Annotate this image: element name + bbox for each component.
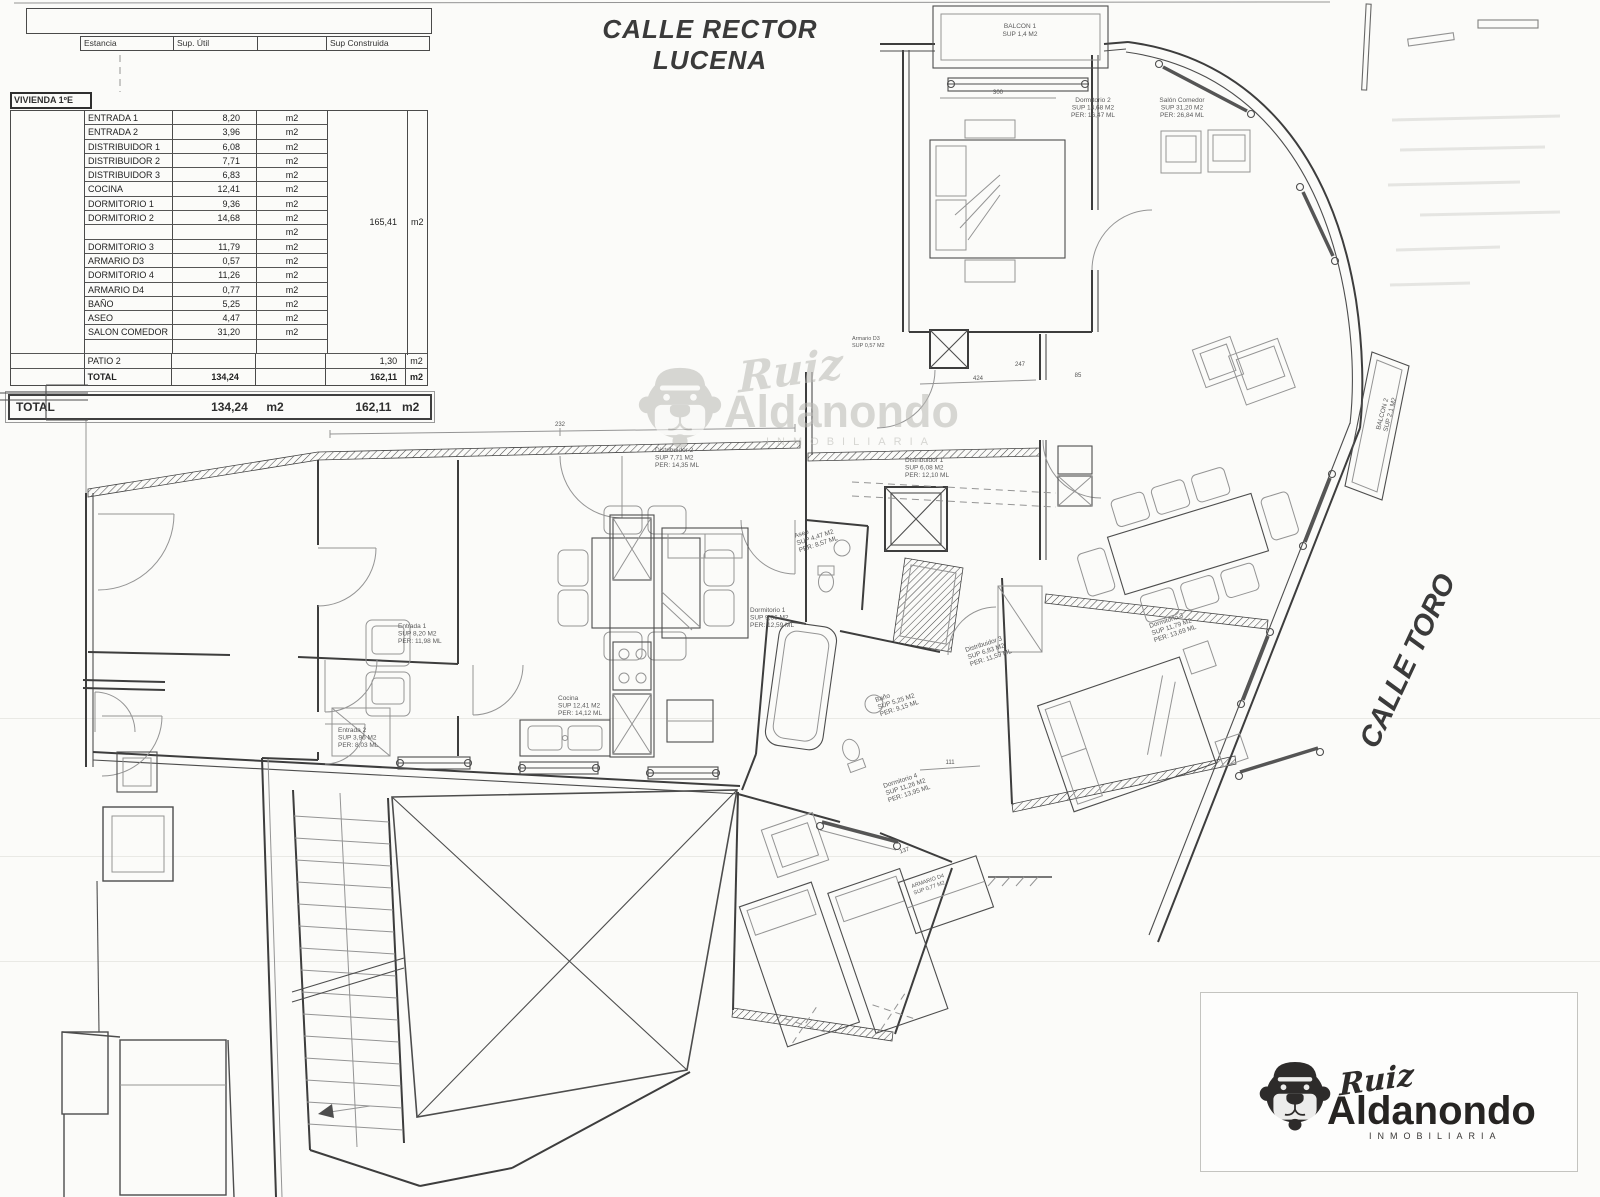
svg-text:Armario D3SUP 0,57 M2: Armario D3SUP 0,57 M2 bbox=[852, 336, 885, 349]
svg-text:Distribuidor 1SUP 6,08 M2PER:: Distribuidor 1SUP 6,08 M2PER: 12,10 ML bbox=[905, 457, 949, 479]
bedroom-center-bed bbox=[662, 528, 748, 742]
svg-text:Distribuidor 2SUP 7,71 M2PER:: Distribuidor 2SUP 7,71 M2PER: 14,35 ML bbox=[655, 447, 699, 469]
svg-text:Entrada 1SUP 8,20 M2PER: 11,98: Entrada 1SUP 8,20 M2PER: 11,98 ML bbox=[398, 623, 442, 645]
svg-text:Dormitorio 4SUP 11,26 M2PER: 1: Dormitorio 4SUP 11,26 M2PER: 13,95 ML bbox=[882, 770, 931, 805]
svg-text:Salón ComedorSUP 31,20 M2PER:: Salón ComedorSUP 31,20 M2PER: 26,84 ML bbox=[1159, 97, 1205, 119]
svg-text:424: 424 bbox=[973, 376, 984, 382]
svg-text:BañoSUP 5,25 M2PER: 9,15 ML: BañoSUP 5,25 M2PER: 9,15 ML bbox=[874, 685, 920, 719]
scan-top-edge bbox=[14, 2, 1330, 3]
svg-text:Dormitorio 1SUP 9,36 M2PER: 12: Dormitorio 1SUP 9,36 M2PER: 12,59 ML bbox=[750, 607, 794, 629]
svg-text:Entrada 2SUP 3,96 M2PER: 8,03: Entrada 2SUP 3,96 M2PER: 8,03 ML bbox=[338, 727, 379, 749]
svg-text:111: 111 bbox=[945, 760, 955, 766]
patio-courtyard bbox=[392, 790, 737, 1117]
staircase bbox=[262, 758, 690, 1197]
bathroom bbox=[742, 607, 996, 790]
living-room-furniture bbox=[877, 130, 1295, 498]
logo-brand-subtitle: INMOBILIARIA bbox=[1369, 1131, 1502, 1141]
dimension-lines bbox=[330, 98, 1056, 770]
svg-text:BALCON 2SUP 2,1 M2: BALCON 2SUP 2,1 M2 bbox=[1375, 395, 1398, 433]
dining-table-left bbox=[558, 506, 734, 660]
ground-mark bbox=[988, 877, 1052, 886]
agency-logo-box: Ruiz Aldanondo INMOBILIARIA bbox=[1200, 992, 1578, 1172]
elevator-shaft-stack bbox=[1058, 446, 1092, 506]
left-unit-doors bbox=[95, 456, 795, 776]
svg-text:CocinaSUP 12,41 M2PER: 14,12 M: CocinaSUP 12,41 M2PER: 14,12 ML bbox=[558, 695, 602, 717]
elevator-main bbox=[885, 487, 947, 551]
patio-2-shaft bbox=[893, 558, 963, 652]
bulldog-logo-icon bbox=[1259, 1051, 1331, 1135]
scanned-floorplan-page: Estancia Sup. Útil Sup Construida VIVIEN… bbox=[0, 0, 1600, 1197]
elevator-shaft-small bbox=[930, 330, 968, 368]
svg-text:85: 85 bbox=[1075, 373, 1082, 379]
balcony-1 bbox=[933, 6, 1108, 91]
svg-text:Dormitorio 2SUP 14,68 M2PER: 1: Dormitorio 2SUP 14,68 M2PER: 16,47 ML bbox=[1071, 97, 1115, 119]
window-right-bottom bbox=[1236, 748, 1324, 780]
svg-text:232: 232 bbox=[555, 422, 566, 428]
svg-text:247: 247 bbox=[1015, 362, 1026, 368]
svg-text:BALCON 1SUP 1,4 M2: BALCON 1SUP 1,4 M2 bbox=[1003, 23, 1038, 38]
section-cut-lines bbox=[852, 482, 1056, 507]
svg-text:AseoSUP 4,47 M2PER: 8,57 ML: AseoSUP 4,47 M2PER: 8,57 ML bbox=[793, 521, 839, 555]
bedroom-top-bed bbox=[930, 120, 1065, 282]
bedroom-d4-section bbox=[732, 792, 994, 1062]
logo-brand-name: Aldanondo bbox=[1327, 1089, 1536, 1134]
svg-text:300: 300 bbox=[993, 90, 1004, 96]
svg-text:137: 137 bbox=[899, 846, 911, 855]
scan-artifacts bbox=[1362, 4, 1560, 285]
kitchen-counter bbox=[520, 515, 654, 757]
